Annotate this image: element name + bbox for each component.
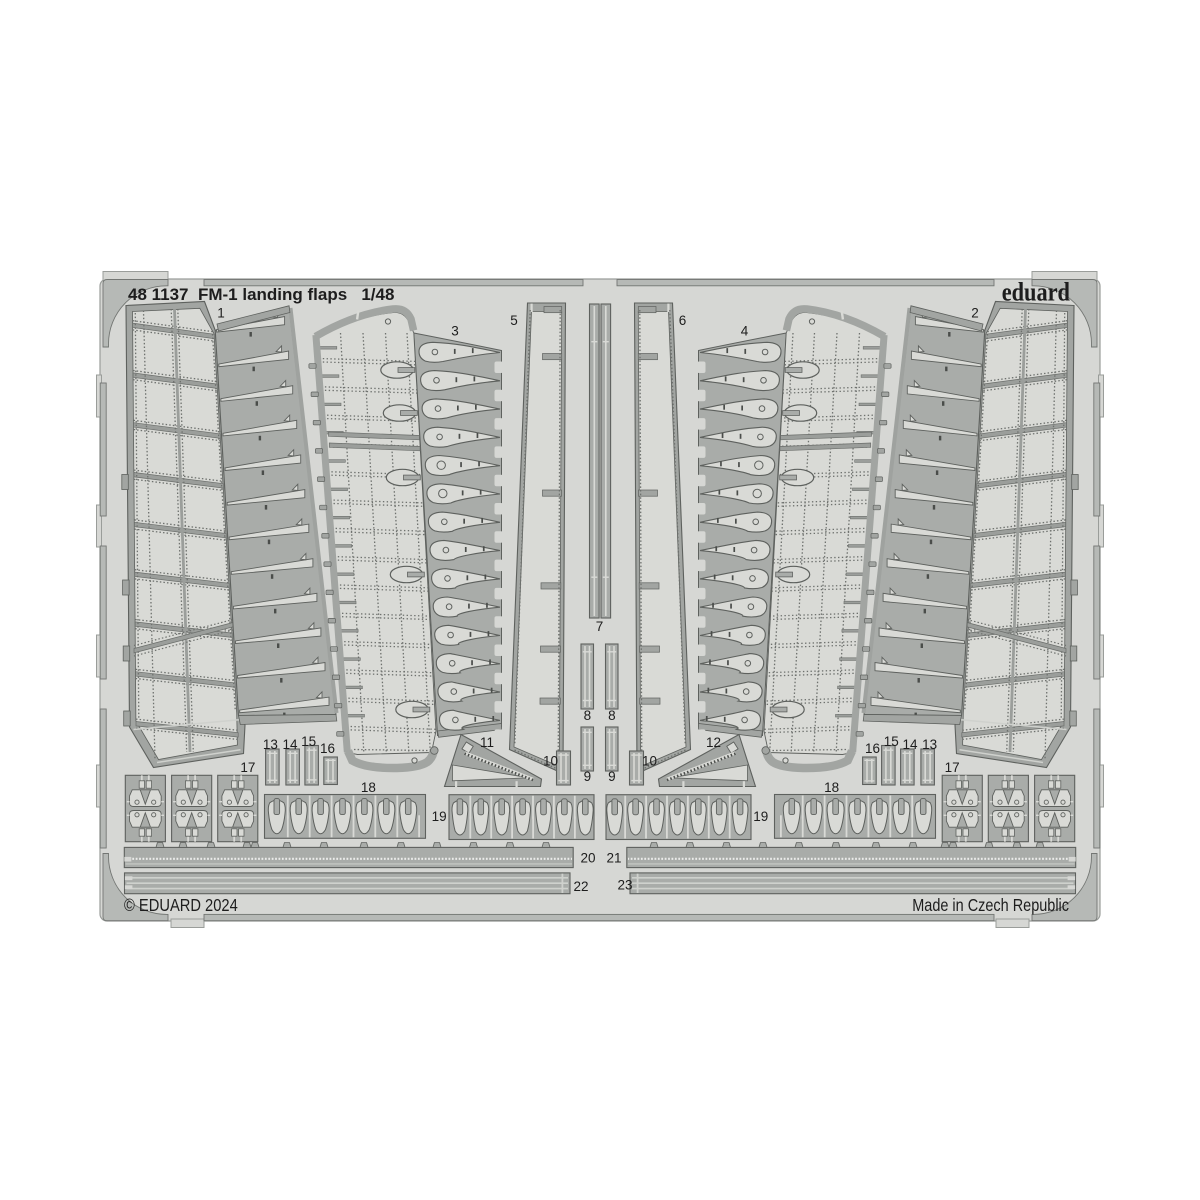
svg-text:14: 14 <box>282 737 298 752</box>
svg-text:48 1137 FM-1 landing flaps: 48 1137 FM-1 landing flaps 1/48 <box>128 285 394 304</box>
svg-text:5: 5 <box>510 313 518 328</box>
svg-text:2: 2 <box>971 306 979 321</box>
svg-text:23: 23 <box>617 878 632 893</box>
svg-text:21: 21 <box>606 851 621 866</box>
svg-text:1: 1 <box>217 306 225 321</box>
svg-text:10: 10 <box>543 754 558 769</box>
svg-text:6: 6 <box>679 313 687 328</box>
svg-text:eduard: eduard <box>1002 278 1071 307</box>
svg-text:18: 18 <box>361 780 376 795</box>
svg-text:13: 13 <box>263 737 278 752</box>
svg-text:19: 19 <box>432 809 447 824</box>
svg-text:Made in Czech Republic: Made in Czech Republic <box>912 896 1069 916</box>
svg-text:12: 12 <box>706 735 721 750</box>
svg-text:17: 17 <box>240 760 255 775</box>
svg-text:15: 15 <box>884 734 899 749</box>
svg-text:16: 16 <box>320 741 335 756</box>
svg-text:15: 15 <box>301 734 316 749</box>
svg-text:13: 13 <box>922 737 937 752</box>
svg-text:© EDUARD 2024: © EDUARD 2024 <box>124 896 238 915</box>
svg-text:7: 7 <box>596 619 604 634</box>
svg-text:14: 14 <box>902 737 918 752</box>
svg-text:9: 9 <box>584 769 592 784</box>
svg-text:8: 8 <box>608 708 616 723</box>
svg-text:9: 9 <box>608 769 616 784</box>
svg-text:4: 4 <box>741 324 749 339</box>
svg-text:20: 20 <box>580 851 595 866</box>
svg-text:17: 17 <box>945 760 960 775</box>
svg-text:18: 18 <box>824 780 839 795</box>
svg-text:3: 3 <box>451 324 459 339</box>
svg-text:16: 16 <box>865 741 880 756</box>
svg-text:19: 19 <box>753 809 768 824</box>
svg-text:10: 10 <box>642 754 657 769</box>
svg-text:8: 8 <box>584 708 592 723</box>
svg-text:22: 22 <box>573 879 588 894</box>
svg-text:11: 11 <box>480 735 494 750</box>
